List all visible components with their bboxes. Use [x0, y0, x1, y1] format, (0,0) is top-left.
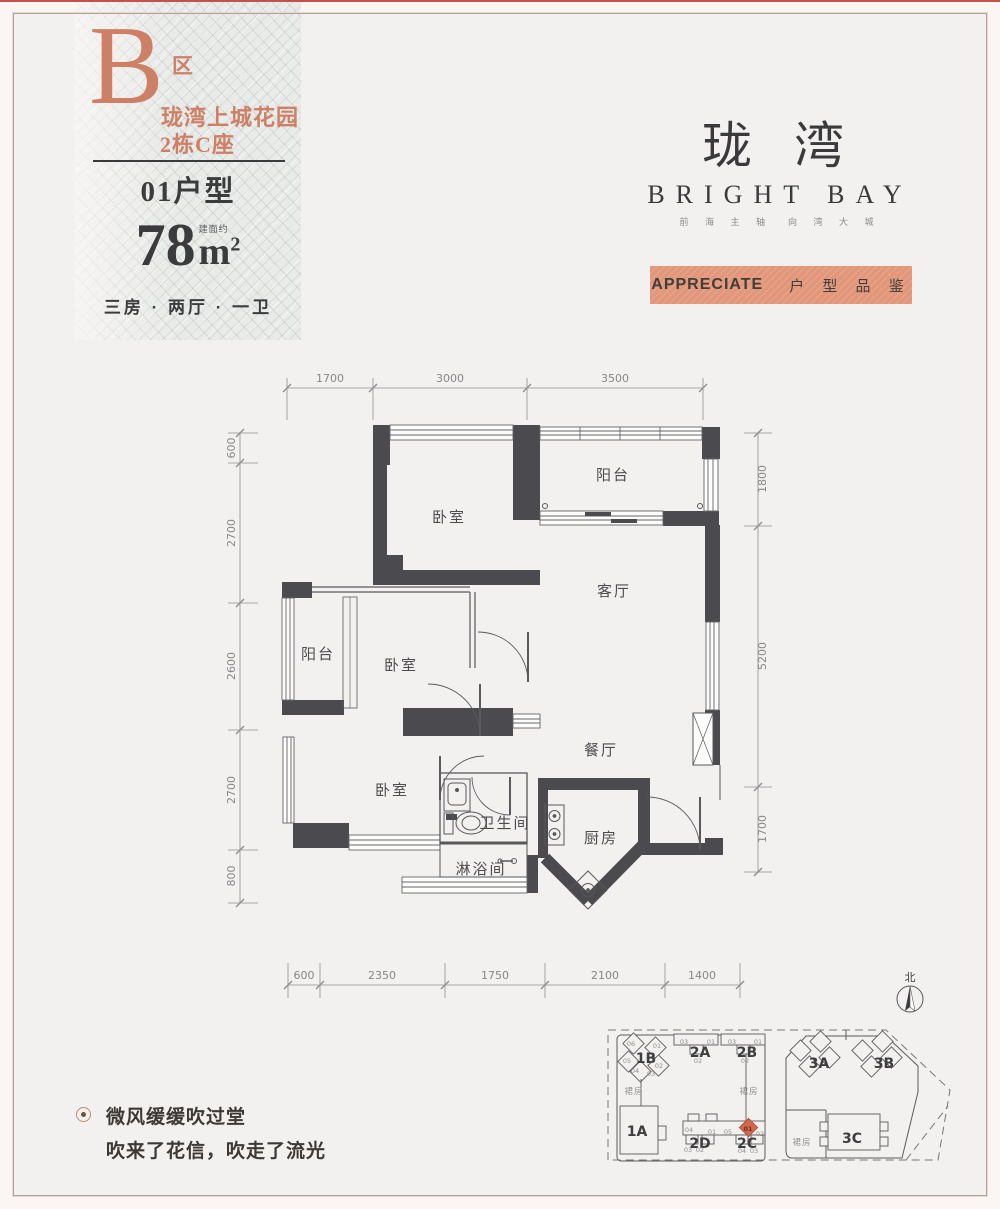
bathroom-sink-icon — [444, 779, 470, 820]
balcony-drain-icon — [698, 504, 703, 509]
interior-thin-walls — [312, 587, 720, 877]
site-unit-number: 01 — [743, 1125, 753, 1133]
site-label-1a: 1A — [627, 1124, 648, 1140]
site-unit-number: 02 — [694, 1057, 702, 1065]
dim-top-1: 1700 — [316, 372, 344, 385]
compass-north-label: 北 — [905, 971, 916, 984]
site-label-1b: 1B — [636, 1051, 656, 1067]
room-label-living-room: 客厅 — [597, 582, 631, 600]
site-unit-number: 05 — [623, 1057, 631, 1065]
compass: 北 — [897, 971, 923, 1012]
room-label-bathroom: 卫生间 — [479, 814, 530, 832]
site-unit-number: 02 — [655, 1062, 663, 1070]
site-unit-number: 01 — [707, 1038, 715, 1046]
dim-right-1: 1800 — [756, 465, 769, 493]
site-unit-number: 01 — [653, 1042, 661, 1050]
dim-left-5: 800 — [225, 866, 238, 887]
site-label-3a: 3A — [809, 1056, 830, 1072]
site-podium-label-1: 裙房 — [624, 1086, 643, 1097]
dim-left-1: 600 — [225, 438, 238, 459]
dimension-lines — [228, 378, 772, 998]
site-unit-number: 02 — [756, 1130, 764, 1138]
site-unit-number: 06 — [627, 1040, 635, 1048]
room-label-dining-room: 餐厅 — [584, 741, 618, 759]
dim-right-3: 1700 — [756, 815, 769, 843]
site-plan: 1B 2A 2B 1A 2D 2C 3A 3B 3C 裙房 裙房 裙房 0601… — [608, 1030, 950, 1161]
footer-slogan-line2: 吹来了花信，吹走了流光 — [106, 1136, 326, 1163]
dim-left-2: 2700 — [225, 519, 238, 547]
site-unit-number: 03 — [680, 1038, 688, 1046]
site-unit-number: 01 — [708, 1128, 716, 1136]
dim-top-3: 3500 — [601, 372, 629, 385]
site-unit-number: 04 — [631, 1067, 639, 1075]
dim-left-3: 2600 — [225, 652, 238, 680]
footer-slogan-line1: 微风缓缓吹过堂 — [106, 1102, 246, 1129]
room-label-bedroom-top: 卧室 — [432, 508, 466, 526]
dim-left-4: 2700 — [225, 776, 238, 804]
room-label-kitchen: 厨房 — [584, 829, 618, 847]
dim-bottom-5: 1400 — [688, 969, 716, 982]
site-podium-label-2: 裙房 — [739, 1086, 758, 1097]
dim-right-2: 5200 — [756, 642, 769, 670]
compass-needle-icon — [910, 986, 915, 1011]
dim-bottom-1: 600 — [294, 969, 315, 982]
site-unit-number: 05 — [724, 1128, 732, 1136]
footer-bullet-dot-icon — [81, 1112, 86, 1117]
site-unit-number: 01 — [754, 1038, 762, 1046]
top-accent-line — [0, 0, 1000, 2]
site-unit-number: 03 — [750, 1147, 758, 1155]
room-labels: 卧室 阳台 客厅 餐厅 阳台 卧室 卧室 卫生间 淋浴间 厨房 — [301, 466, 631, 878]
room-label-balcony-top: 阳台 — [596, 466, 630, 484]
site-unit-number: 02 — [696, 1146, 704, 1154]
floor-plan-diagonal-walls — [545, 842, 646, 901]
compass-needle-icon — [905, 986, 910, 1011]
site-unit-number: 04 — [738, 1147, 746, 1155]
room-label-shower: 淋浴间 — [455, 860, 506, 878]
site-unit-number: 03 — [728, 1038, 736, 1046]
room-label-bedroom-middle: 卧室 — [384, 656, 418, 674]
site-label-3b: 3B — [874, 1056, 894, 1072]
balcony-drain-icon — [543, 504, 548, 509]
site-podium-label-3: 裙房 — [792, 1137, 811, 1148]
site-unit-number: 04 — [685, 1126, 693, 1134]
dim-bottom-2: 2350 — [368, 969, 396, 982]
dim-top-2: 3000 — [436, 372, 464, 385]
floor-plan-canvas: 1700 3000 3500 600 2700 2600 2700 800 18… — [0, 0, 1000, 1209]
dim-bottom-4: 2100 — [591, 969, 619, 982]
site-unit-number: 02 — [741, 1057, 749, 1065]
site-unit-number: 03 — [684, 1146, 692, 1154]
footer-bullet-icon — [76, 1107, 91, 1122]
dim-bottom-3: 1750 — [481, 969, 509, 982]
site-unit-number: 03 — [647, 1070, 655, 1078]
site-label-3c: 3C — [842, 1131, 862, 1147]
room-label-bedroom-bottom: 卧室 — [375, 781, 409, 799]
room-label-balcony-left: 阳台 — [301, 645, 335, 663]
